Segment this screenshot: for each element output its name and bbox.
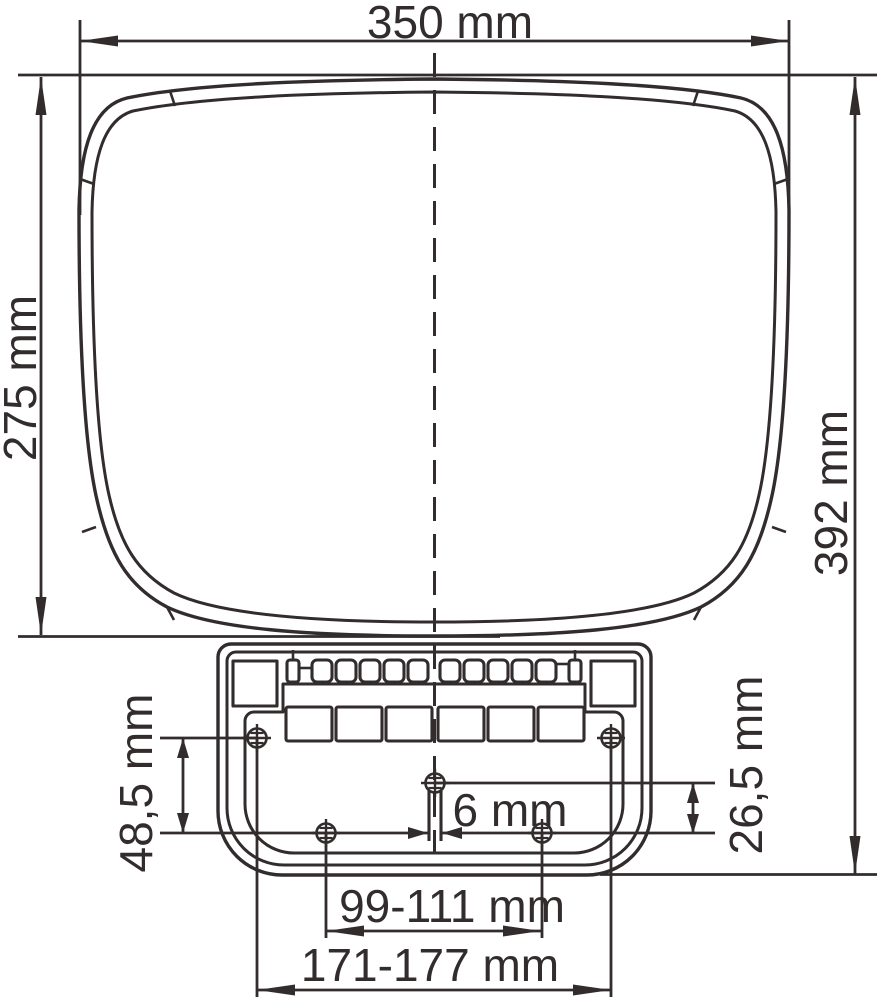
arrowhead	[850, 77, 861, 115]
bracket-corner-square-right	[591, 661, 635, 706]
vent-narrow-left	[287, 660, 299, 682]
dimension-hole-center-offset: 26,5 mm	[687, 676, 772, 855]
arrowhead	[687, 814, 699, 834]
bracket-corner-square-left	[233, 661, 277, 706]
arrowhead	[408, 827, 428, 839]
vent-square	[512, 660, 532, 682]
vent-square	[360, 660, 380, 682]
arrowhead	[36, 77, 47, 115]
vent-square	[408, 660, 428, 682]
arrowhead	[573, 985, 611, 996]
arrowhead	[257, 985, 295, 996]
vent-square	[536, 660, 556, 682]
compartment-cell	[386, 707, 432, 741]
compartment-cell	[538, 707, 584, 741]
arrowhead	[687, 783, 699, 803]
vent-square	[488, 660, 508, 682]
arrowhead	[80, 36, 118, 47]
vent-square	[440, 660, 460, 682]
dim-label-slot-width: 6 mm	[453, 784, 568, 836]
dimension-body-height: 275 mm	[0, 77, 47, 635]
dimension-overall-height: 392 mm	[805, 77, 861, 874]
dim-label-overall-height: 392 mm	[805, 410, 857, 576]
dim-label-body-height: 275 mm	[0, 295, 46, 461]
dimension-hole-row-spacing: 48,5 mm	[110, 694, 189, 873]
vent-square	[312, 660, 332, 682]
dim-label-hole-row-spacing: 48,5 mm	[110, 694, 162, 873]
compartment-cell	[286, 707, 332, 741]
compartment-cell	[438, 707, 484, 741]
technical-drawing: 350 mm 275 mm 392 mm 48,5 mm 26,5 mm 6 m…	[0, 0, 878, 1000]
vent-square	[384, 660, 404, 682]
dimension-overall-width: 350 mm	[80, 0, 789, 48]
compartment-cell	[488, 707, 534, 741]
vent-square	[336, 660, 356, 682]
arrowhead	[36, 597, 47, 635]
dim-label-outer-hole-span: 171-177 mm	[301, 939, 559, 991]
dimension-inner-hole-span: 99-111 mm	[326, 880, 565, 937]
arrowhead	[850, 836, 861, 874]
dim-label-overall-width: 350 mm	[367, 0, 533, 48]
arrowhead	[751, 36, 789, 47]
dim-label-hole-center-offset: 26,5 mm	[720, 676, 772, 855]
vent-square	[464, 660, 484, 682]
dimension-outer-hole-span: 171-177 mm	[257, 939, 611, 996]
arrowhead	[177, 738, 189, 758]
vent-narrow-right	[569, 660, 581, 682]
drawing-canvas: 350 mm 275 mm 392 mm 48,5 mm 26,5 mm 6 m…	[0, 0, 878, 1000]
arrowhead	[177, 813, 189, 833]
compartment-cell	[336, 707, 382, 741]
dim-label-inner-hole-span: 99-111 mm	[339, 880, 565, 932]
